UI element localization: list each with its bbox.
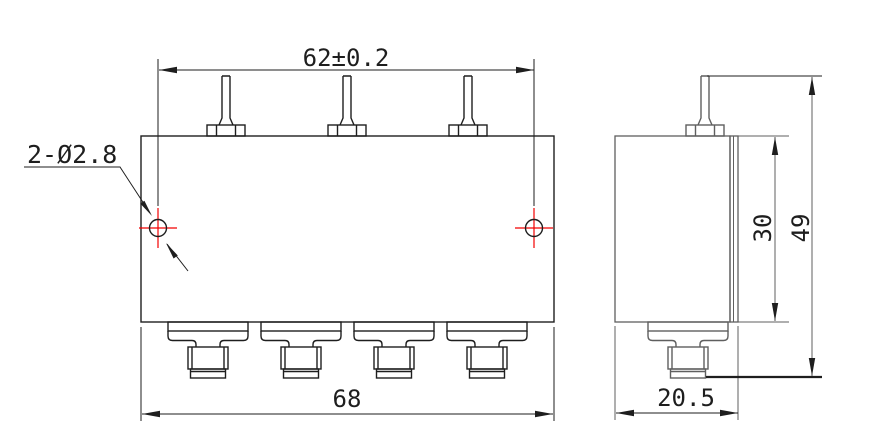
sma-connector (648, 322, 728, 378)
arrowhead-bottom (809, 358, 815, 376)
callout-label: 2-Ø2.8 (27, 140, 117, 169)
front-sma-connectors (168, 322, 527, 378)
arrowhead-right (720, 410, 738, 416)
dim-68-label: 68 (333, 385, 362, 413)
dim-49-label: 49 (787, 214, 815, 243)
dim-overall-width: 68 (141, 327, 554, 421)
dim-62-label: 62±0.2 (303, 44, 390, 72)
hole-callout: 2-Ø2.8 (24, 140, 188, 271)
mounting-hole-left (139, 208, 177, 248)
sma-connector (447, 322, 527, 378)
sma-connector (168, 322, 248, 378)
front-view (139, 76, 554, 378)
leader-line (24, 167, 150, 213)
leader-arrowhead-lower (166, 243, 178, 259)
leader-arrowhead-upper (140, 201, 152, 216)
sma-connector (354, 322, 434, 378)
arrowhead-top (772, 137, 778, 155)
side-view (615, 76, 738, 378)
dim-205-label: 20.5 (657, 384, 715, 412)
arrowhead-right (535, 411, 553, 417)
sma-connector (261, 322, 341, 378)
top-pin (328, 76, 366, 136)
arrowhead-right (516, 67, 534, 73)
top-pin (207, 76, 245, 136)
top-pin (686, 76, 724, 136)
front-body-outline (141, 136, 554, 322)
dimension-drawing: 62±0.2 68 20.5 30 49 2-Ø2.8 (0, 0, 884, 437)
arrowhead-left (159, 67, 177, 73)
arrowhead-left (616, 410, 634, 416)
dim-30-label: 30 (749, 214, 777, 243)
dim-body-height: 30 (735, 136, 789, 322)
top-pin (449, 76, 487, 136)
mounting-hole-right (515, 208, 553, 248)
arrowhead-top (809, 77, 815, 95)
arrowhead-left (142, 411, 160, 417)
side-body-outline (615, 136, 730, 322)
front-top-pins (207, 76, 487, 136)
technical-drawing-canvas: 62±0.2 68 20.5 30 49 2-Ø2.8 (0, 0, 884, 437)
arrowhead-bottom (772, 303, 778, 321)
